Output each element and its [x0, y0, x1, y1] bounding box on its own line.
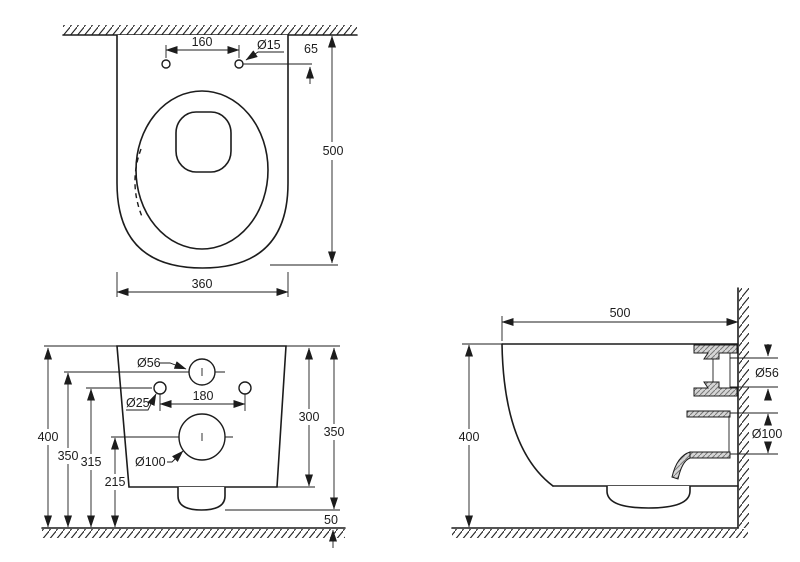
bowl-bottom-bump [178, 487, 225, 510]
dim-160-label: 160 [192, 35, 213, 49]
dim-height-side: 400 [459, 345, 480, 527]
bowl-bottom-bump-side [607, 486, 690, 508]
dim-500-label: 500 [323, 144, 344, 158]
wall-hatch [63, 25, 357, 35]
dim-350-left-label: 350 [58, 449, 79, 463]
outlet-connector-lower [690, 452, 730, 458]
dim-d15-label: Ø15 [257, 38, 281, 52]
dim-outlet-height: 215 [105, 438, 126, 527]
mounting-hole-right [235, 60, 243, 68]
top-view: 160 Ø15 65 500 360 [63, 25, 357, 297]
dim-total-height: 400 [38, 348, 59, 527]
technical-drawing-canvas: 160 Ø15 65 500 360 [0, 0, 800, 562]
dim-d56-label: Ø56 [755, 366, 779, 380]
dim-d25-label: Ø25 [126, 396, 150, 410]
fixing-hole-left [154, 382, 166, 394]
inlet-connector [694, 345, 737, 396]
bowl-opening [176, 112, 231, 172]
dim-400-label: 400 [38, 430, 59, 444]
toilet-front-curve [502, 344, 553, 486]
inlet-connector-upper [694, 345, 737, 359]
dim-315-label: 315 [81, 455, 102, 469]
dim-d56-label: Ø56 [137, 356, 161, 370]
dim-depth-side: 500 [502, 306, 738, 322]
outlet-connector-upper [687, 411, 730, 417]
outlet-pipe-elbow [672, 452, 690, 479]
dim-180-label: 180 [193, 389, 214, 403]
dim-350-right-label: 350 [324, 425, 345, 439]
wall-hung-toilet-dimension-drawing: 160 Ø15 65 500 360 [0, 0, 800, 562]
dim-d100-label: Ø100 [135, 455, 166, 469]
dim-d100-label: Ø100 [752, 427, 783, 441]
dim-fixing-height: 315 [81, 389, 102, 527]
mounting-hole-left [162, 60, 170, 68]
dim-215-label: 215 [105, 475, 126, 489]
outlet-connector [672, 411, 730, 479]
inlet-connector-lower [694, 382, 737, 396]
side-view: 500 400 Ø56 [452, 288, 782, 538]
dim-500-label: 500 [610, 306, 631, 320]
dim-body-height: 300 [299, 348, 320, 486]
wall-hatch [739, 288, 749, 528]
dim-65-label: 65 [304, 42, 318, 56]
dim-width: 360 [117, 272, 288, 297]
floor-hatch [42, 529, 345, 538]
dim-inlet-height: 350 [58, 373, 79, 527]
dim-400-label: 400 [459, 430, 480, 444]
dim-50-label: 50 [324, 513, 338, 527]
dim-360-label: 360 [192, 277, 213, 291]
fixing-hole-right [239, 382, 251, 394]
dim-body-to-lowest: 350 [324, 348, 345, 509]
dim-300-label: 300 [299, 410, 320, 424]
rear-view: 180 Ø56 Ø25 Ø100 400 350 315 [38, 346, 345, 548]
floor-hatch [452, 529, 748, 538]
